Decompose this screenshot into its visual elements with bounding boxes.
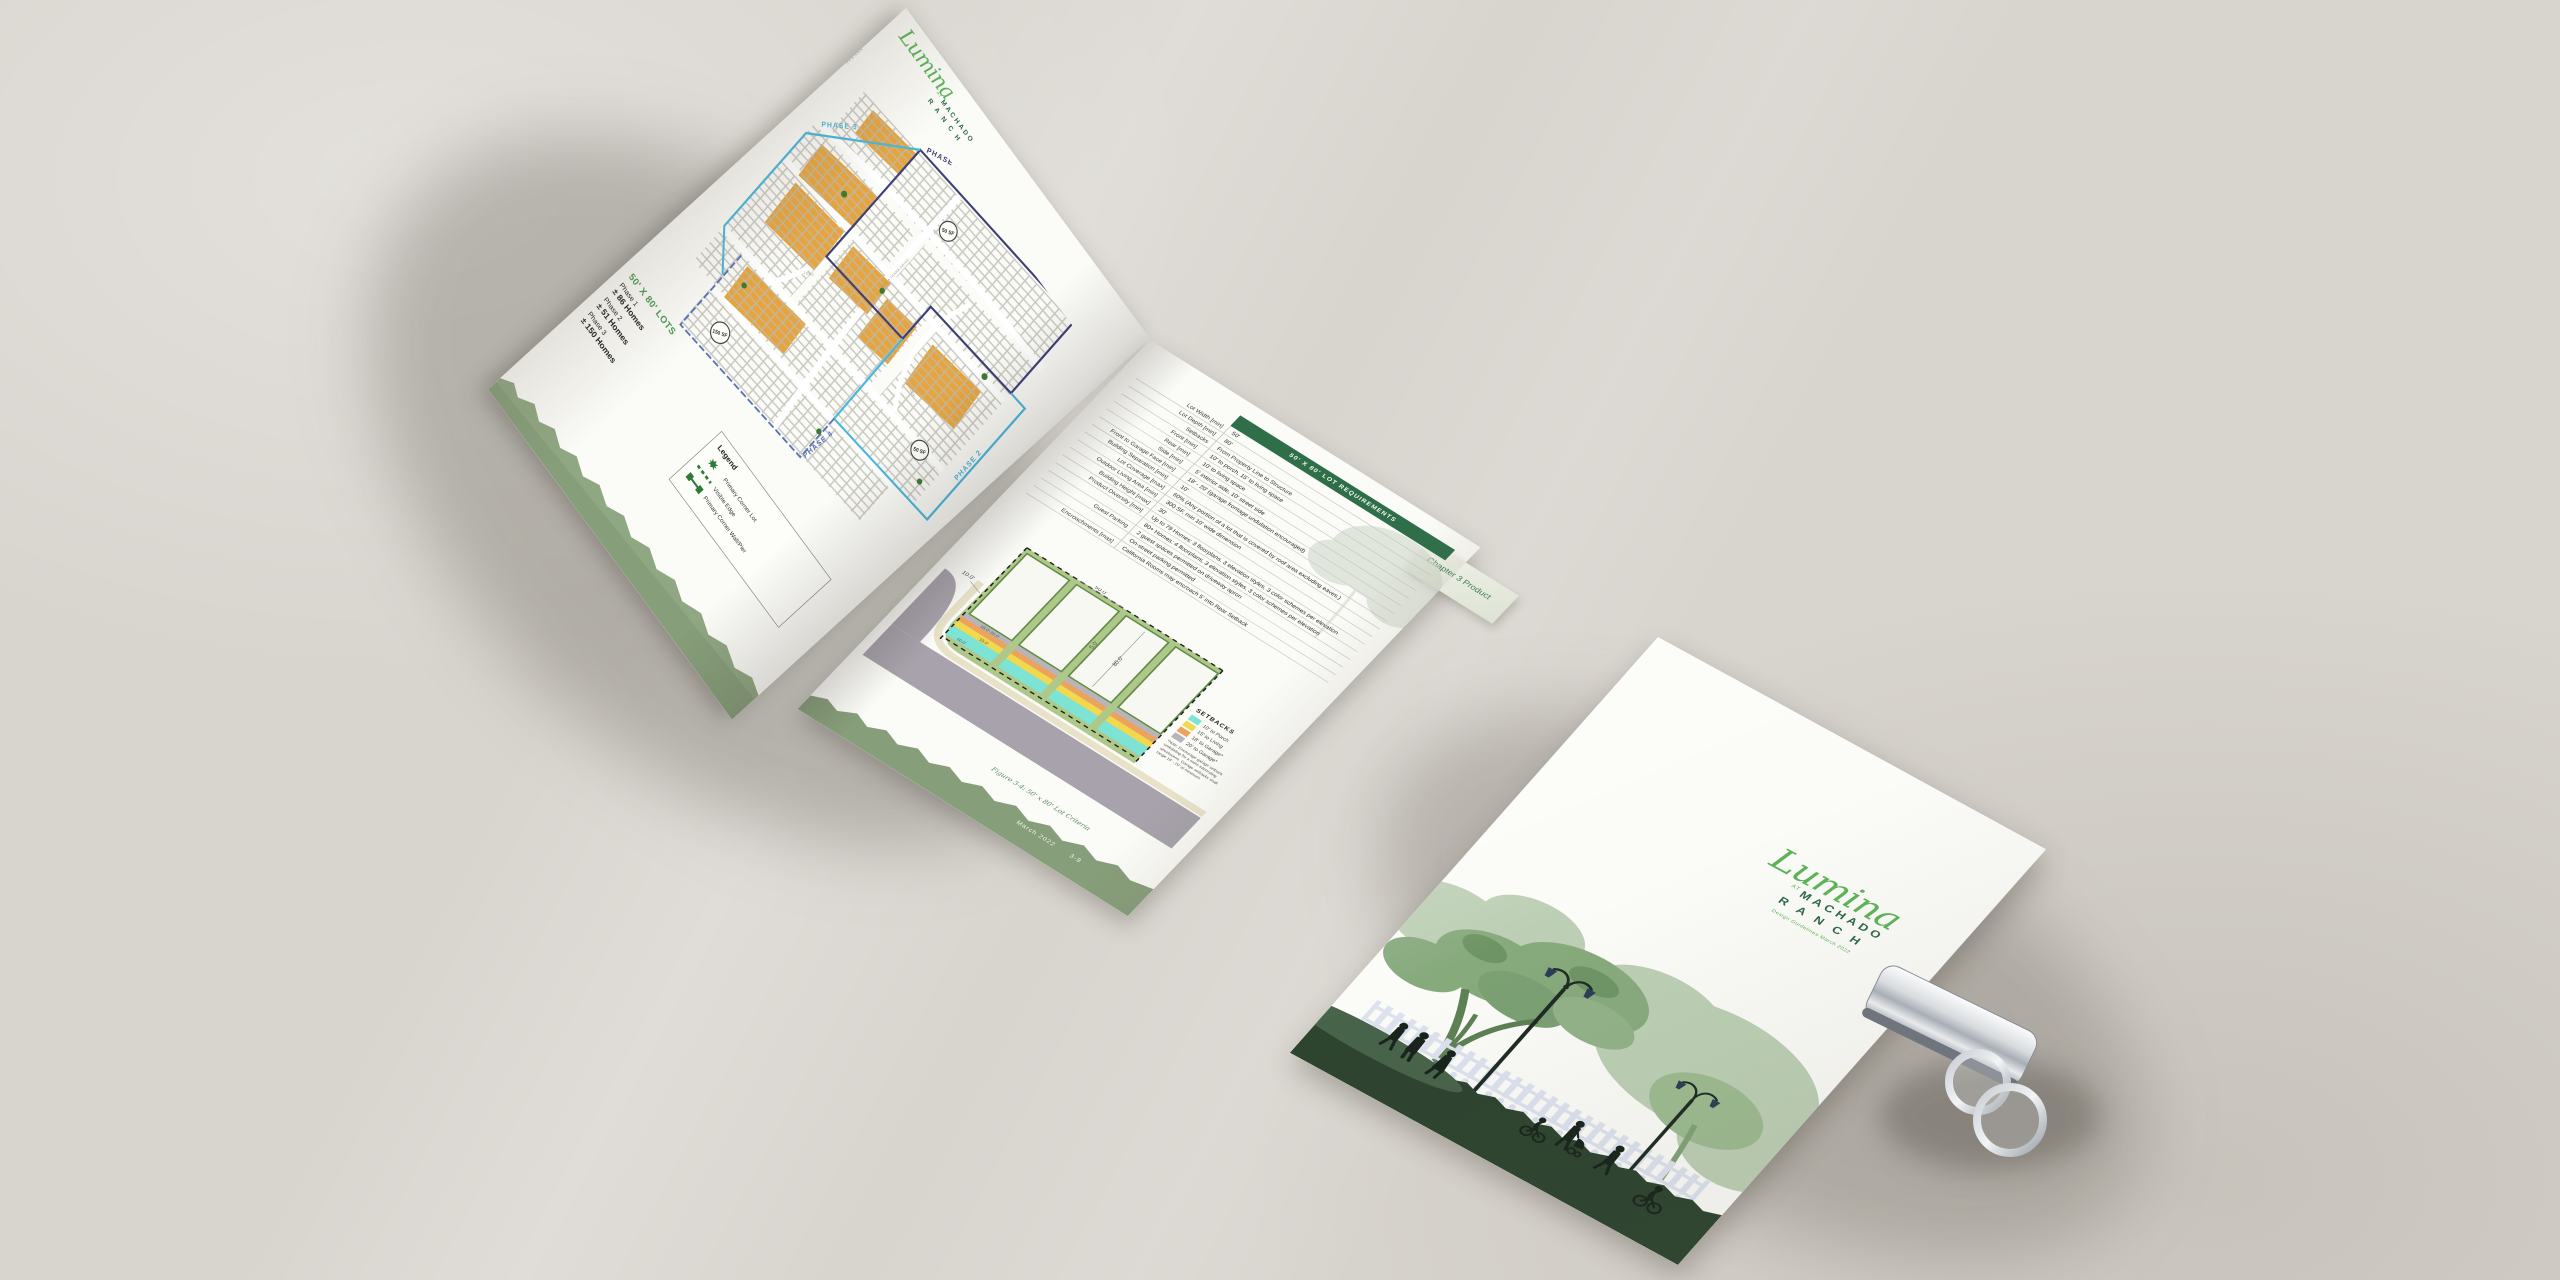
clip-ring	[1977, 1087, 2043, 1153]
mockup-scene: Lumina AT MACHADO R A N C H AVENUE	[0, 0, 2560, 1280]
binder-clip	[1852, 962, 2092, 1182]
dim-label: 10.0'	[960, 570, 975, 581]
street-label-avenue: AVENUE	[845, 46, 865, 65]
page-footer: March 2022 3-9	[979, 797, 1119, 887]
